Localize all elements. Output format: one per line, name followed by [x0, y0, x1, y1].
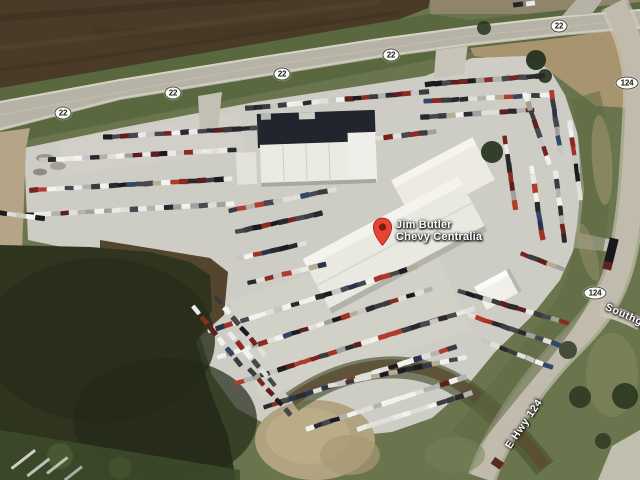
place-label-line1: Jim Butler: [396, 220, 482, 232]
satellite-imagery: [0, 0, 640, 480]
place-marker-pin[interactable]: [372, 217, 393, 247]
place-label-line2: Chevy Centralia: [396, 232, 482, 244]
satellite-map-view[interactable]: 2222222222124124 E Hwy 124Southga Jim Bu…: [0, 0, 640, 480]
place-label[interactable]: Jim Butler Chevy Centralia: [396, 220, 482, 243]
